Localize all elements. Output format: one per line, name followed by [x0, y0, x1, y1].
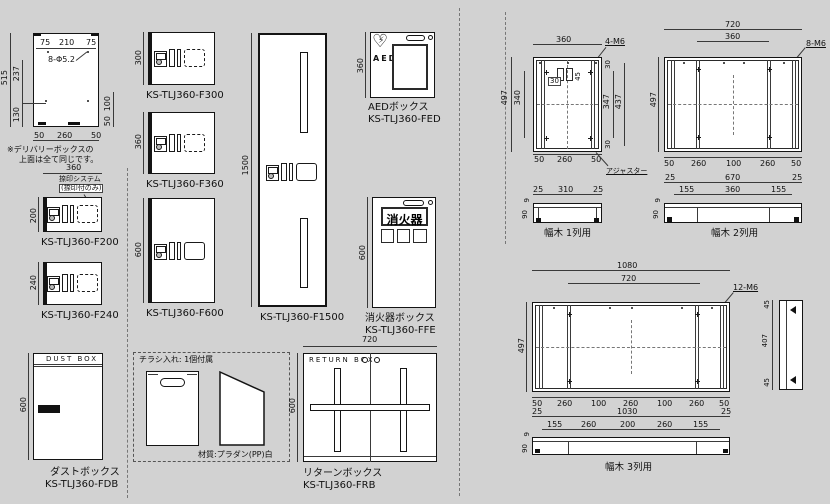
plinth-side-view — [664, 203, 802, 223]
dim-line — [28, 353, 29, 460]
slot — [300, 52, 308, 133]
drawing-fire-box: 消火器 600 消火器ボックス KS-TLJ360-FFE — [352, 188, 462, 334]
foot-mark — [790, 376, 796, 384]
dim-line — [674, 194, 792, 195]
dim-b-260: 260 — [557, 156, 572, 164]
screw-dot — [595, 62, 597, 64]
header-line — [34, 366, 102, 367]
stamp-note-2: (捺印付のみ) — [59, 184, 103, 193]
dim-line — [367, 197, 368, 308]
dim-line — [697, 41, 769, 42]
dim-b-50l: 50 — [534, 156, 544, 164]
header-line — [34, 364, 102, 365]
dim-line — [532, 416, 730, 417]
corner-mark — [91, 33, 99, 36]
slot — [310, 404, 430, 411]
dim-width: 360 — [66, 164, 81, 172]
plinth-side-view — [532, 437, 730, 455]
bolt-hole — [588, 70, 593, 75]
hole-dot — [45, 100, 47, 102]
drawing-f1500: 1500 KS-TLJ360-F1500 — [240, 22, 342, 324]
dim-line — [532, 397, 730, 398]
screw-dot — [631, 307, 633, 309]
bolt-hole — [567, 312, 572, 317]
dim-s-9: 9 — [524, 198, 531, 202]
drawing-return-box: 720 RETURN BOX 600 リターンボックス KS-TLJ360-FR… — [288, 332, 456, 498]
bolt-hole — [696, 67, 701, 72]
stamp-note-1: 捺印システム — [59, 176, 101, 183]
dim-210: 210 — [59, 39, 74, 47]
screw-dot — [567, 62, 569, 64]
product-name: AEDボックス — [368, 103, 429, 114]
model-label: KS-TLJ360-F300 — [146, 91, 224, 102]
dim-line — [511, 57, 512, 152]
bolt-callout: 8-M6 — [806, 40, 826, 48]
flyer-title: チラシ入れ: 1個付属 — [139, 356, 213, 364]
dim-b5: 260 — [689, 400, 704, 408]
drawing-flyer-holder: チラシ入れ: 1個付属 材質:プラダン(PP)白 — [133, 352, 290, 462]
drawing-plinth-1: 360 4-M6 30 45 497 340 30 347 437 30 50 … — [500, 28, 642, 242]
dim-line — [624, 63, 625, 146]
foot-mark — [38, 122, 46, 125]
dim-line — [772, 300, 773, 390]
bolt-hole — [767, 67, 772, 72]
bolt-hole — [567, 379, 572, 384]
hole-dot — [87, 51, 89, 53]
foot — [594, 218, 599, 222]
dim-line — [113, 92, 114, 127]
bolt-hole — [696, 135, 701, 140]
bolt-hole — [544, 136, 549, 141]
screw-dot — [683, 62, 685, 64]
centerline — [537, 104, 598, 105]
corner-mark — [33, 33, 41, 36]
model-label: KS-TLJ360-FED — [368, 115, 441, 126]
dim-line — [143, 32, 144, 85]
dim-tick — [22, 103, 46, 104]
foot-mark — [790, 306, 796, 314]
dim-line — [568, 283, 700, 284]
dim-line — [542, 429, 720, 430]
dim-line — [143, 112, 144, 174]
inner-line — [534, 207, 601, 208]
foot — [535, 449, 540, 453]
model-label: KS-TLJ360-FDB — [45, 480, 118, 491]
lock-unit — [154, 241, 206, 261]
dim-line — [533, 154, 602, 155]
inner-line — [533, 441, 729, 442]
dim-height-497: 497 — [501, 90, 509, 105]
screw-dot — [743, 62, 745, 64]
dim-50-right: 50 — [104, 116, 112, 126]
model-label: KS-TLJ360-F1500 — [260, 313, 344, 324]
aed-window — [392, 44, 428, 90]
bolt-callout: 4-M6 — [605, 38, 625, 46]
drawing-f600: 600 KS-TLJ360-F600 — [132, 188, 234, 320]
dim-pr-45t: 45 — [764, 300, 771, 309]
bolt-hole — [544, 70, 549, 75]
keyhole — [362, 357, 368, 363]
drawing-f240: 240 KS-TLJ360-F240 — [28, 255, 128, 325]
drawing-plinth-3: 1080 720 12-M6 497 50 260 100 260 100 — [505, 260, 830, 486]
keyhole — [428, 200, 433, 205]
dim-line — [22, 60, 23, 127]
screw-dot — [711, 307, 713, 309]
dim-line — [297, 353, 298, 462]
flyer-side-view — [219, 371, 265, 446]
dim-line — [43, 173, 102, 174]
dim-line — [143, 198, 144, 303]
dim-line — [664, 29, 802, 30]
dim-s-90: 90 — [522, 210, 529, 219]
model-label: KS-TLJ360-F200 — [41, 238, 119, 249]
window — [413, 229, 427, 243]
dim-437: 437 — [615, 94, 623, 109]
dim-130: 130 — [13, 107, 21, 122]
dim-line — [533, 194, 602, 195]
dim-line — [664, 157, 802, 158]
dim-b1: 260 — [557, 400, 572, 408]
plinth2-label: 幅木 2列用 — [711, 229, 758, 239]
dim-237: 237 — [13, 66, 21, 81]
drawing-dust-box: DUST BOX 600 ダストボックス KS-TLJ360-FDB — [18, 345, 128, 495]
centerline — [733, 75, 734, 135]
screw-dot — [723, 62, 725, 64]
dim-inner-30: 30 — [548, 77, 561, 86]
lock-unit — [266, 162, 318, 182]
keyhole — [374, 357, 380, 363]
plinth3-label: 幅木 3列用 — [605, 463, 652, 473]
lightning-icon: ⚡ — [378, 37, 384, 46]
dim-top-30: 30 — [605, 60, 612, 69]
inner-line — [769, 207, 770, 222]
lock-unit — [154, 133, 206, 153]
lock-unit — [47, 204, 99, 224]
foot — [723, 449, 728, 453]
dim-arrow — [187, 374, 197, 375]
flyer-material: 材質:プラダン(PP)白 — [198, 451, 273, 459]
plinth1-label: 幅木 1列用 — [544, 229, 591, 239]
dim-inner-45: 45 — [575, 72, 582, 81]
drawing-delivery-top-view: 75 210 75 8-Φ5.2 515 237 130 100 50 50 2… — [0, 8, 127, 168]
inner-line — [568, 441, 569, 454]
card-slot — [406, 35, 425, 41]
dim-b1: 260 — [691, 160, 706, 168]
bolt-hole — [588, 136, 593, 141]
dim-inner-340: 340 — [514, 90, 522, 105]
fire-sign-text: 消火器 — [386, 213, 422, 227]
plinth-side-view — [533, 203, 602, 223]
dim-pr-407: 407 — [762, 334, 769, 347]
hole-dot — [47, 51, 49, 53]
dim-s-9: 9 — [524, 432, 531, 436]
dim-line — [658, 57, 659, 152]
lock-unit — [154, 48, 206, 68]
dim-347: 347 — [603, 94, 611, 109]
card-slot — [403, 200, 424, 206]
drawing-f200: 360 捺印システム (捺印付のみ) 200 KS-TLJ360-F200 — [28, 160, 128, 252]
dim-line — [365, 32, 366, 98]
foot — [667, 217, 672, 222]
dim-75-right: 75 — [86, 39, 96, 47]
dim-515: 515 — [1, 70, 9, 85]
inner-line — [665, 207, 801, 208]
anchor-plate — [566, 68, 573, 81]
inner-line — [696, 441, 697, 454]
dim-line — [526, 302, 527, 392]
dust-header-text: DUST BOX — [46, 356, 98, 363]
screw-dot — [539, 62, 541, 64]
dim-s-90: 90 — [522, 444, 529, 453]
centerline — [631, 320, 632, 374]
model-label: KS-TLJ360-F240 — [41, 311, 119, 322]
dim-line — [533, 44, 602, 45]
dim-s-9: 9 — [655, 198, 662, 202]
inner-line — [697, 207, 698, 222]
bolt-callout: 12-M6 — [733, 284, 758, 292]
screw-dot — [681, 307, 683, 309]
model-label: KS-TLJ360-FRB — [303, 481, 375, 492]
dim-width: 720 — [362, 336, 377, 344]
dim-line — [10, 33, 11, 127]
dim-line — [251, 33, 252, 307]
foot — [536, 218, 541, 222]
keyhole — [428, 35, 433, 40]
drawing-f300: 300 KS-TLJ360-F300 — [132, 22, 234, 102]
name-plate — [38, 405, 60, 413]
foot-mark — [68, 122, 80, 125]
flyer-handle — [160, 378, 185, 387]
dim-arrow — [148, 374, 158, 375]
inner-line — [304, 456, 436, 457]
fire-sign: 消火器 — [381, 207, 428, 226]
dim-b4: 100 — [657, 400, 672, 408]
bolt-hole — [695, 312, 700, 317]
foot — [794, 217, 799, 222]
dim-75-left: 75 — [40, 39, 50, 47]
dim-pr-45b: 45 — [764, 378, 771, 387]
dim-b4: 50 — [791, 160, 801, 168]
bolt-hole — [767, 135, 772, 140]
dim-100: 100 — [104, 96, 112, 111]
dim-b0: 50 — [664, 160, 674, 168]
dim-b2: 100 — [591, 400, 606, 408]
model-label: KS-TLJ360-F600 — [146, 309, 224, 320]
drawing-aed-box: ♡ ⚡ AED 360 AEDボックス KS-TLJ360-FED — [352, 22, 458, 126]
dim-line — [664, 182, 802, 183]
dim-hole-callout: 8-Φ5.2 — [48, 56, 75, 64]
screw-dot — [553, 307, 555, 309]
screw-dot — [783, 62, 785, 64]
dim-line — [38, 262, 39, 305]
dim-bottom-30: 30 — [605, 140, 612, 149]
dim-b3: 260 — [760, 160, 775, 168]
dim-b2: 100 — [726, 160, 741, 168]
product-name: 消火器ボックス — [365, 314, 435, 325]
note-line-1: ※デリバリーボックスの — [7, 146, 93, 154]
product-name: リターンボックス — [303, 469, 382, 480]
dim-line — [524, 71, 525, 138]
window — [381, 229, 394, 243]
drawing-canvas: 75 210 75 8-Φ5.2 515 237 130 100 50 50 2… — [0, 0, 830, 504]
lock-unit — [47, 273, 99, 293]
slot — [300, 218, 308, 288]
screw-dot — [609, 307, 611, 309]
window — [397, 229, 410, 243]
adjuster-callout: アジャスター — [606, 168, 647, 175]
dim-line — [36, 48, 96, 49]
dim-height: 1500 — [242, 155, 250, 175]
dim-line — [303, 346, 437, 347]
product-name: ダストボックス — [50, 468, 120, 479]
inner-line — [786, 301, 787, 389]
dim-line — [38, 197, 39, 232]
dim-line — [532, 270, 730, 271]
dim-s-90: 90 — [653, 210, 660, 219]
drawing-plinth-2: 720 360 8-M6 497 50 260 100 260 50 — [645, 20, 830, 242]
dim-line — [33, 140, 99, 141]
hole-dot — [87, 100, 89, 102]
drawing-f360: 360 KS-TLJ360-F360 — [132, 102, 234, 192]
bolt-hole — [695, 379, 700, 384]
